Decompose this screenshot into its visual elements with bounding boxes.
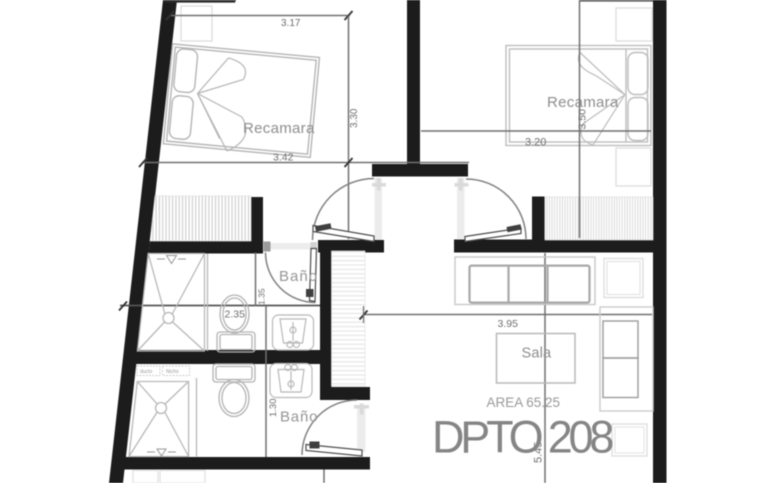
svg-text:3.50: 3.50 xyxy=(577,109,589,130)
svg-text:2.35: 2.35 xyxy=(225,309,246,321)
svg-text:3.30: 3.30 xyxy=(349,108,360,128)
svg-text:3.42: 3.42 xyxy=(273,152,294,164)
svg-text:Baño: Baño xyxy=(279,268,318,285)
svg-text:Baño: Baño xyxy=(280,409,318,426)
svg-text:1.30: 1.30 xyxy=(268,399,279,418)
svg-text:Sala: Sala xyxy=(522,346,553,362)
svg-text:3.95: 3.95 xyxy=(498,318,519,330)
svg-text:3.20: 3.20 xyxy=(525,137,546,149)
svg-text:Nicho: Nicho xyxy=(166,369,179,375)
svg-text:Recamara: Recamara xyxy=(243,120,315,137)
svg-text:ducto: ducto xyxy=(140,369,152,375)
svg-text:DPTO 208: DPTO 208 xyxy=(432,412,613,463)
svg-text:Recamara: Recamara xyxy=(547,94,619,111)
svg-text:1.35: 1.35 xyxy=(257,288,267,305)
svg-text:3.17: 3.17 xyxy=(281,18,301,29)
svg-text:AREA 65.25: AREA 65.25 xyxy=(487,395,561,410)
